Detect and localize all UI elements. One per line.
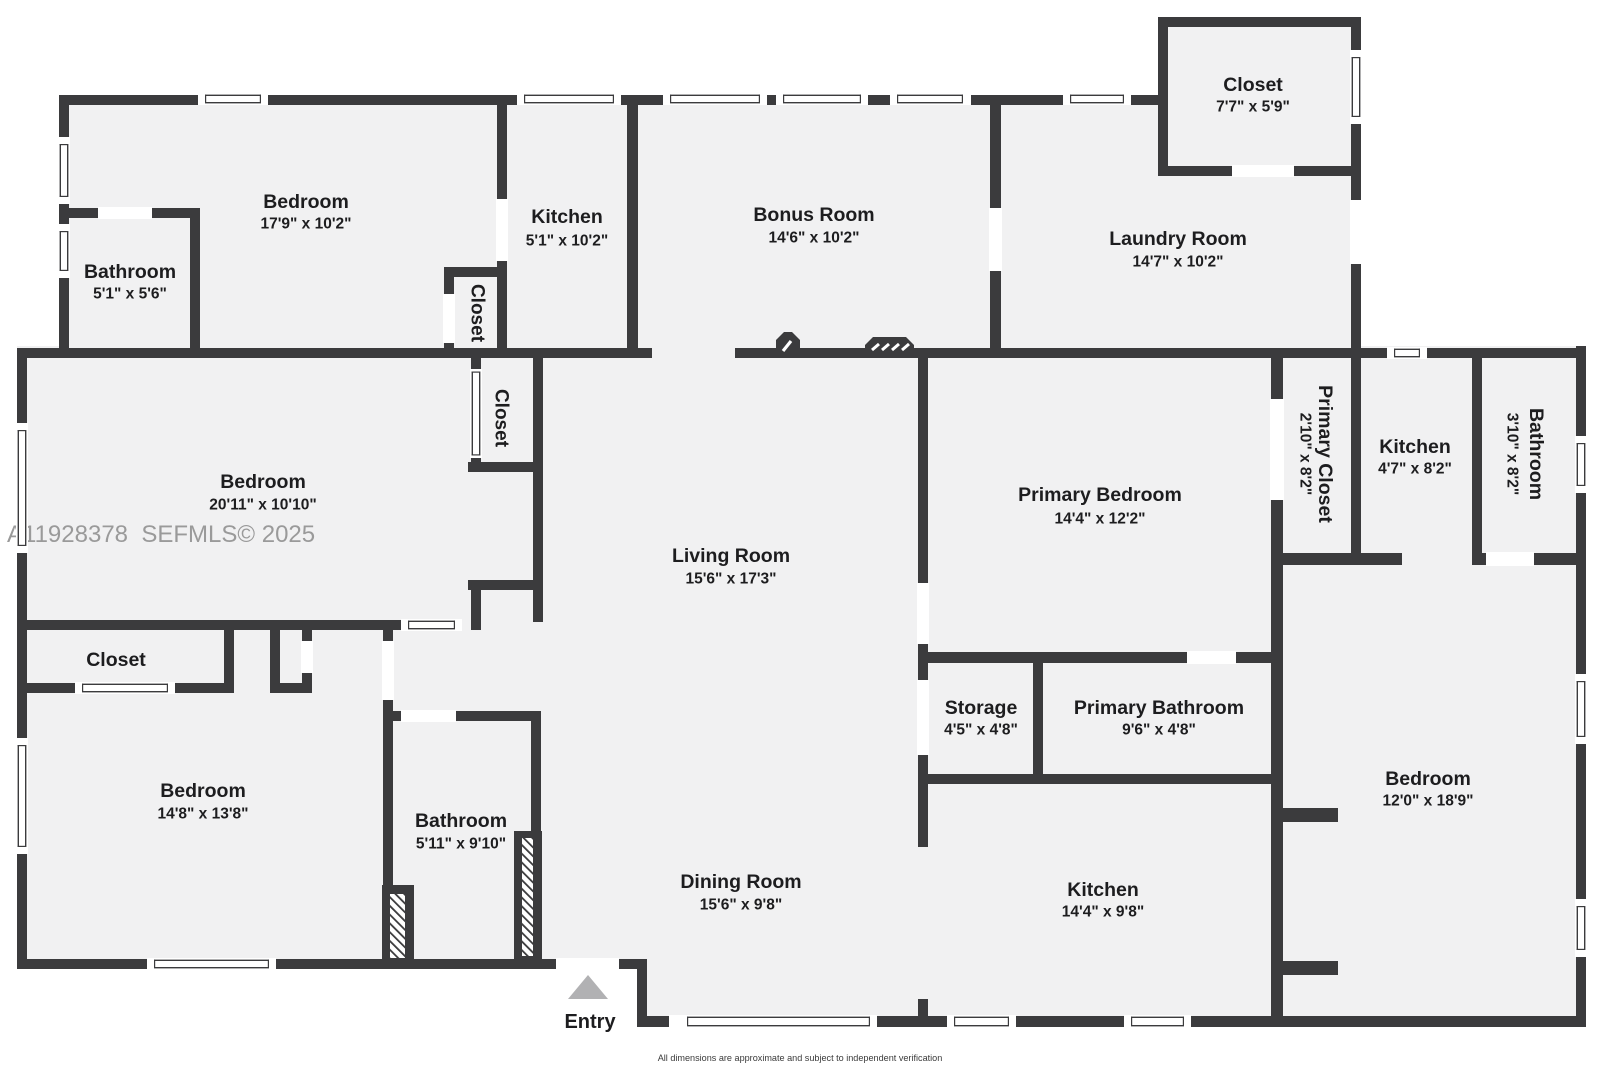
svg-text:A11928378 SEFMLS© 2025: A11928378 SEFMLS© 2025 [7, 521, 315, 548]
svg-text:Storage: Storage [945, 697, 1018, 719]
svg-text:Closet: Closet [490, 389, 511, 448]
svg-text:Primary Closet: Primary Closet [1314, 385, 1336, 523]
svg-text:Entry: Entry [564, 1011, 616, 1033]
svg-text:17'9" x 10'2": 17'9" x 10'2" [260, 215, 351, 232]
svg-text:5'11" x 9'10": 5'11" x 9'10" [416, 835, 506, 852]
svg-text:15'6" x 9'8": 15'6" x 9'8" [700, 896, 782, 913]
svg-text:Kitchen: Kitchen [531, 206, 603, 228]
svg-text:2'10" x 8'2": 2'10" x 8'2" [1297, 413, 1314, 495]
svg-text:3'10" x 8'2": 3'10" x 8'2" [1504, 413, 1521, 495]
svg-text:Bedroom: Bedroom [160, 780, 246, 802]
svg-text:5'1" x 10'2": 5'1" x 10'2" [526, 232, 608, 249]
svg-text:All dimensions are approximate: All dimensions are approximate and subje… [658, 1053, 943, 1063]
svg-text:Bedroom: Bedroom [1385, 768, 1471, 790]
svg-text:Kitchen: Kitchen [1067, 879, 1139, 901]
svg-text:4'7" x 8'2": 4'7" x 8'2" [1378, 460, 1452, 477]
svg-text:Bedroom: Bedroom [220, 471, 306, 493]
svg-text:Closet: Closet [466, 284, 487, 343]
svg-text:9'6" x 4'8": 9'6" x 4'8" [1122, 721, 1196, 738]
svg-text:Living Room: Living Room [672, 545, 790, 567]
svg-text:14'4" x 9'8": 14'4" x 9'8" [1062, 903, 1144, 920]
svg-text:Primary Bathroom: Primary Bathroom [1074, 697, 1244, 719]
svg-text:14'7" x 10'2": 14'7" x 10'2" [1132, 253, 1223, 270]
svg-text:Closet: Closet [1223, 74, 1283, 96]
svg-text:Bathroom: Bathroom [84, 261, 176, 283]
svg-text:20'11" x 10'10": 20'11" x 10'10" [209, 496, 316, 513]
svg-text:Bathroom: Bathroom [1525, 408, 1547, 500]
svg-text:Bonus Room: Bonus Room [753, 204, 874, 226]
svg-text:Kitchen: Kitchen [1379, 436, 1451, 458]
svg-text:Laundry Room: Laundry Room [1109, 228, 1247, 250]
svg-text:14'4" x 12'2": 14'4" x 12'2" [1054, 510, 1145, 527]
svg-text:5'1" x 5'6": 5'1" x 5'6" [93, 285, 167, 302]
svg-text:Bathroom: Bathroom [415, 810, 507, 832]
svg-text:15'6" x 17'3": 15'6" x 17'3" [685, 570, 776, 587]
svg-text:12'0" x 18'9": 12'0" x 18'9" [1382, 792, 1473, 809]
svg-text:Bedroom: Bedroom [263, 191, 349, 213]
svg-text:Primary Bedroom: Primary Bedroom [1018, 484, 1182, 506]
svg-text:14'8" x 13'8": 14'8" x 13'8" [157, 805, 248, 822]
svg-text:4'5" x 4'8": 4'5" x 4'8" [944, 721, 1018, 738]
svg-text:Closet: Closet [86, 649, 146, 671]
svg-text:Dining Room: Dining Room [680, 871, 801, 893]
svg-text:7'7" x 5'9": 7'7" x 5'9" [1216, 98, 1290, 115]
svg-text:14'6" x 10'2": 14'6" x 10'2" [768, 229, 859, 246]
